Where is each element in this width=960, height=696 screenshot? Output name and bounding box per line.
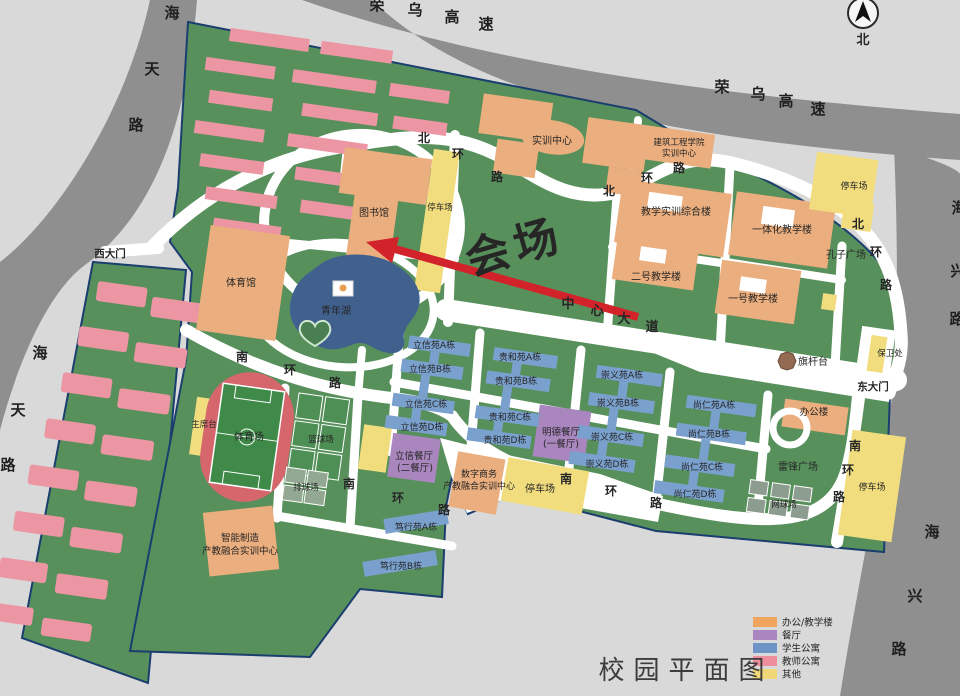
north-ring-0b: 北 bbox=[603, 183, 615, 198]
south-ring-2a: 路 bbox=[329, 375, 342, 390]
shangren-b-label: 尚仁苑B栋 bbox=[688, 428, 730, 440]
north-ring-2a: 路 bbox=[491, 169, 504, 184]
south-ring-0b: 南 bbox=[560, 471, 572, 486]
lixin-a-label: 立信苑A栋 bbox=[413, 339, 455, 351]
rongwu-char-1a: 乌 bbox=[407, 1, 422, 19]
south-ring-0d: 南 bbox=[849, 438, 861, 453]
legend-swatch-office bbox=[753, 617, 777, 627]
volleyball-courts-label: 排球场 bbox=[293, 482, 319, 493]
rongwu-char-0b: 荣 bbox=[713, 78, 730, 96]
building-no2-label: 二号教学楼 bbox=[631, 270, 681, 283]
chongyi-a-label: 崇义苑A栋 bbox=[601, 369, 643, 381]
kongzi-square-label: 孔子广场 bbox=[826, 248, 866, 261]
haixing-char-0: 海 bbox=[924, 523, 939, 541]
small-structure bbox=[821, 293, 837, 311]
central-ave-3: 道 bbox=[645, 319, 658, 335]
rongwu-char-0a: 荣 bbox=[368, 0, 385, 14]
teaching-complex-label: 教学实训综合楼 bbox=[641, 205, 711, 218]
campus-map-svg: 会场 荣 乌 高 速 荣 乌 高 速 海 天 路 海 天 路 海 兴 路 海 兴… bbox=[0, 0, 960, 696]
campus-map: 会场 荣 乌 高 速 荣 乌 高 速 海 天 路 海 天 路 海 兴 路 海 兴… bbox=[0, 0, 960, 696]
central-ave-0: 中 bbox=[561, 296, 574, 312]
west-gate-label: 西大门 bbox=[94, 247, 126, 260]
rongwu-char-3b: 速 bbox=[810, 100, 825, 118]
south-ring-2b: 路 bbox=[650, 495, 663, 510]
rongwu-char-3a: 速 bbox=[478, 15, 493, 33]
central-ave-1: 心 bbox=[590, 304, 603, 319]
haitian-char-0b: 海 bbox=[32, 344, 47, 362]
chongyi-d-label: 崇义苑D栋 bbox=[586, 458, 629, 470]
duxing-a-label: 笃行苑A栋 bbox=[395, 521, 437, 533]
south-ring-1a: 环 bbox=[284, 363, 296, 377]
haixing-char-1: 兴 bbox=[907, 587, 922, 605]
parking-east-label: 停车场 bbox=[858, 481, 885, 493]
lixin-c-label: 立信苑C栋 bbox=[405, 398, 447, 410]
lixin-canteen-label-2: (二餐厅) bbox=[397, 462, 433, 474]
legend-label-office: 办公/教学楼 bbox=[782, 617, 833, 629]
digital-commerce-label-2: 产教融合实训中心 bbox=[443, 480, 515, 492]
office-building-label: 办公楼 bbox=[800, 406, 829, 418]
training-center-label: 实训中心 bbox=[532, 134, 572, 147]
north-ring-0a: 北 bbox=[418, 130, 430, 145]
gymnasium-label: 体育馆 bbox=[226, 276, 256, 289]
duxing-b-label: 笃行苑B栋 bbox=[380, 560, 422, 572]
digital-commerce-label-1: 数字商务 bbox=[461, 468, 497, 480]
south-ring-0a: 南 bbox=[236, 349, 248, 364]
lake-pavilion-roof bbox=[340, 285, 347, 292]
south-ring-2d: 路 bbox=[833, 489, 846, 504]
parking-south-label: 停车场 bbox=[525, 482, 555, 495]
mingde-canteen-label-1: 明德餐厅 bbox=[542, 426, 581, 438]
legend-swatch-student bbox=[753, 643, 777, 653]
haitian-char-0a: 海 bbox=[164, 4, 179, 22]
north-ring-1b: 环 bbox=[641, 171, 653, 185]
legend-label-teacher: 教师公寓 bbox=[782, 656, 820, 668]
south-ring-2c: 路 bbox=[438, 502, 451, 517]
chongyi-c-label: 崇义苑C栋 bbox=[591, 431, 633, 443]
security-office-label: 保卫处 bbox=[877, 348, 903, 359]
intelligent-mfg-label-1: 智能制造 bbox=[221, 532, 260, 544]
guihe-c-label: 贵和苑C栋 bbox=[489, 411, 531, 423]
stadium-label: 体育场 bbox=[234, 430, 264, 443]
shangren-c-label: 尚仁苑C栋 bbox=[681, 461, 723, 473]
parking-northeast-label: 停车场 bbox=[840, 180, 867, 192]
chongyi-b-label: 崇义苑B栋 bbox=[597, 397, 639, 409]
north-ring-1a: 环 bbox=[452, 147, 464, 161]
legend-label-canteen: 餐厅 bbox=[782, 630, 802, 642]
basketball-courts-label: 篮球场 bbox=[308, 434, 334, 445]
intelligent-mfg-label-2: 产教融合实训中心 bbox=[202, 545, 279, 557]
flag-platform-shape bbox=[778, 352, 796, 370]
legend-label-student: 学生公寓 bbox=[782, 643, 820, 655]
guihe-d-label: 贵和苑D栋 bbox=[484, 434, 527, 446]
parking-library-label: 停车场 bbox=[427, 202, 453, 213]
south-ring-1c: 环 bbox=[392, 491, 404, 505]
shangren-d-label: 尚仁苑D栋 bbox=[674, 488, 717, 500]
library-label: 图书馆 bbox=[359, 206, 389, 219]
north-ring-1c: 环 bbox=[870, 245, 882, 259]
haitian-char-1b: 天 bbox=[10, 401, 26, 419]
north-ring-0c: 北 bbox=[852, 216, 864, 231]
haixing-char-2: 路 bbox=[891, 640, 907, 658]
compass-north-label: 北 bbox=[856, 33, 869, 48]
haitian-char-1a: 天 bbox=[144, 60, 160, 78]
construction-institute-label-1: 建筑工程学院 bbox=[653, 137, 705, 148]
guihe-a-label: 贵和苑A栋 bbox=[499, 351, 541, 363]
legend-label-other: 其他 bbox=[782, 669, 802, 681]
guihe-b-label: 贵和苑B栋 bbox=[495, 375, 537, 387]
rongwu-char-2b: 高 bbox=[778, 92, 793, 110]
leifeng-square-label: 雷锋广场 bbox=[778, 460, 818, 473]
legend-swatch-canteen bbox=[753, 630, 777, 640]
flag-platform-label: 旗杆台 bbox=[798, 355, 828, 368]
north-ring-2c: 路 bbox=[880, 277, 893, 292]
shangren-a-label: 尚仁苑A栋 bbox=[693, 399, 735, 411]
north-ring-2b: 路 bbox=[673, 160, 686, 175]
rongwu-char-2a: 高 bbox=[444, 8, 459, 26]
haixing-edge-char-2: 路 bbox=[949, 310, 960, 328]
lixin-canteen-label-1: 立信餐厅 bbox=[395, 450, 434, 462]
mingde-canteen-label-2: (一餐厅) bbox=[543, 438, 579, 450]
rongwu-char-1b: 乌 bbox=[750, 85, 765, 103]
south-ring-0c: 南 bbox=[343, 476, 355, 491]
construction-institute-label-2: 实训中心 bbox=[662, 148, 697, 159]
haixing-edge-char-1: 兴 bbox=[950, 262, 960, 280]
lixin-b-label: 立信苑B栋 bbox=[409, 363, 451, 375]
lixin-d-label: 立信苑D栋 bbox=[401, 421, 444, 433]
page-title: 校园平面图 bbox=[598, 656, 773, 686]
south-ring-1d: 环 bbox=[842, 463, 854, 477]
youth-lake-label: 青年湖 bbox=[321, 304, 351, 317]
building-no1-label: 一号教学楼 bbox=[728, 292, 778, 305]
east-gate-label: 东大门 bbox=[857, 380, 889, 393]
tennis-courts-label: 网球场 bbox=[771, 499, 797, 510]
haixing-edge-char-0: 海 bbox=[951, 199, 960, 217]
lake-south-stub bbox=[358, 350, 362, 396]
haitian-char-2a: 路 bbox=[128, 116, 144, 134]
south-ring-1b: 环 bbox=[605, 484, 617, 498]
central-ave-2: 大 bbox=[617, 311, 630, 327]
haitian-char-2b: 路 bbox=[0, 456, 16, 474]
integrated-teaching-label: 一体化教学楼 bbox=[752, 223, 812, 236]
rostrum-label: 主席台 bbox=[191, 419, 217, 430]
